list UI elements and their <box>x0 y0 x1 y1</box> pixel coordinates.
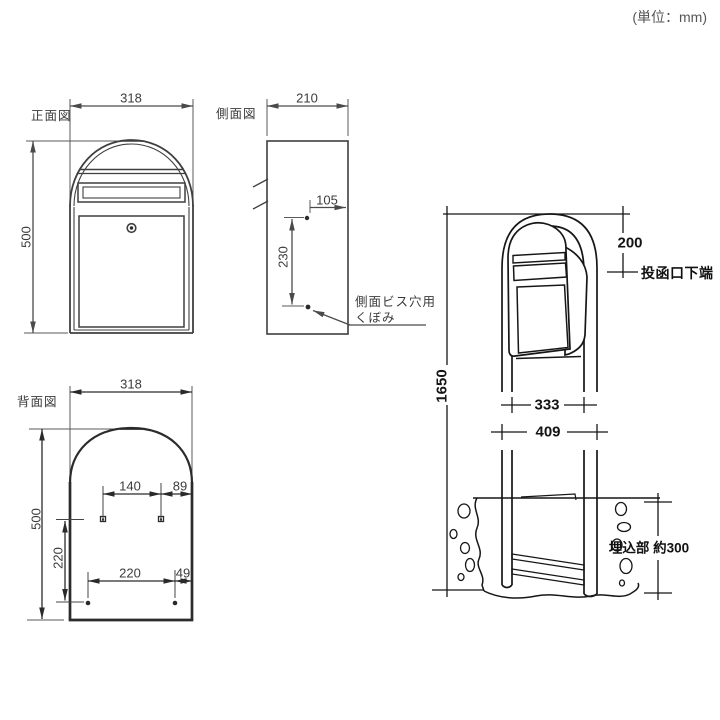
rear-height-dim: 500 <box>30 508 43 530</box>
rear-upper-edge-dim: 89 <box>173 480 187 493</box>
rear-upper-pitch-dim: 140 <box>119 480 141 493</box>
box-mail-slot <box>514 263 567 281</box>
install-slot-offset-dim: 200 <box>617 236 642 251</box>
rear-lower-hole-left <box>86 601 91 606</box>
rear-upper-holes <box>101 517 164 522</box>
box-bottom-edge <box>516 357 581 359</box>
side-width-dim: 210 <box>296 92 318 105</box>
rear-lower-edge-dim: 49 <box>176 567 190 580</box>
side-note-line2: くぼみ <box>355 312 396 325</box>
rear-row-pitch-dim: 220 <box>52 547 65 569</box>
drawing-linework <box>0 0 720 720</box>
rear-view-drawing <box>27 386 193 620</box>
side-lid-mark-1 <box>253 179 268 187</box>
side-hole-pitch-dim: 230 <box>277 246 290 268</box>
side-note-leader <box>313 311 350 326</box>
technical-drawing-sheet: (単位：mm) 正面図 318 500 側面図 210 105 230 側面ビス… <box>0 0 720 720</box>
front-view-label: 正面図 <box>31 110 72 123</box>
side-lid-mark-2 <box>253 201 268 209</box>
install-embed-note: 埋込部 約300 <box>609 541 689 555</box>
front-view-drawing <box>24 99 193 333</box>
front-width-dim: 318 <box>120 92 142 105</box>
rear-lower-hole-right <box>173 601 178 606</box>
install-slot-label: 投函口下端 <box>641 266 714 280</box>
rear-lower-pitch-dim: 220 <box>119 567 141 580</box>
side-screw-hole-upper <box>305 216 309 220</box>
side-view-label: 側面図 <box>216 108 257 121</box>
install-pole-length-dim: 1650 <box>435 369 450 402</box>
anchor-bar-2 <box>512 569 584 585</box>
front-height-dim: 500 <box>20 226 33 248</box>
front-dome-inner <box>74 144 189 206</box>
anchor-bar-1 <box>512 554 584 570</box>
side-note-line1: 側面ビス穴用 <box>355 296 436 309</box>
front-mail-slot <box>78 183 185 202</box>
rear-width-dim: 318 <box>120 378 142 391</box>
unit-note: (単位：mm) <box>632 10 707 24</box>
rear-arch <box>70 428 192 483</box>
install-inner-width-dim: 333 <box>534 398 559 413</box>
rear-view-label: 背面図 <box>17 396 58 409</box>
install-outer-width-dim: 409 <box>535 425 560 440</box>
side-screw-hole-lower <box>306 305 311 310</box>
side-hole-inset-dim: 105 <box>316 194 338 207</box>
